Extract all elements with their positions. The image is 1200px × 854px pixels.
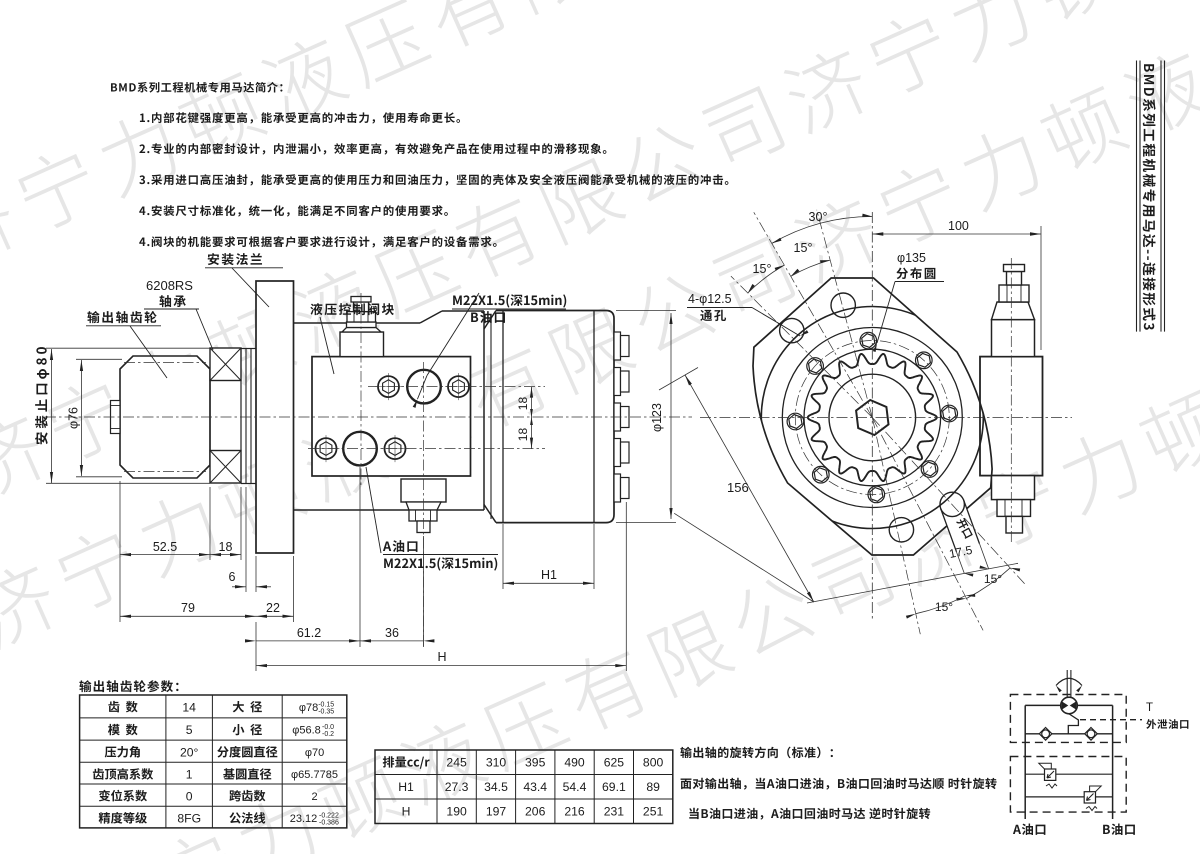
svg-text:-0.35: -0.35 bbox=[318, 708, 334, 715]
svg-text:φ135: φ135 bbox=[897, 251, 926, 265]
svg-text:-0.386: -0.386 bbox=[319, 820, 339, 827]
svg-text:φ56.8: φ56.8 bbox=[292, 725, 321, 737]
svg-text:18: 18 bbox=[516, 428, 530, 442]
svg-text:2: 2 bbox=[311, 791, 317, 803]
svg-text:310: 310 bbox=[486, 756, 507, 770]
svg-text:18: 18 bbox=[219, 540, 233, 554]
svg-text:251: 251 bbox=[643, 805, 664, 819]
svg-text:φ70: φ70 bbox=[305, 747, 324, 759]
svg-text:490: 490 bbox=[564, 756, 585, 770]
svg-text:395: 395 bbox=[525, 756, 546, 770]
svg-text:-0.2: -0.2 bbox=[322, 731, 334, 738]
svg-text:54.4: 54.4 bbox=[563, 780, 587, 794]
svg-text:φ78: φ78 bbox=[299, 702, 318, 714]
svg-text:61.2: 61.2 bbox=[297, 626, 321, 640]
svg-text:6208RS: 6208RS bbox=[146, 278, 193, 293]
svg-text:36: 36 bbox=[385, 626, 399, 640]
svg-text:216: 216 bbox=[564, 805, 585, 819]
svg-text:27.3: 27.3 bbox=[445, 780, 469, 794]
svg-text:4-φ12.5: 4-φ12.5 bbox=[688, 292, 732, 306]
svg-text:1: 1 bbox=[186, 768, 193, 782]
svg-text:H: H bbox=[437, 650, 446, 664]
svg-text:15°: 15° bbox=[753, 262, 772, 276]
svg-text:43.4: 43.4 bbox=[523, 780, 547, 794]
svg-text:30°: 30° bbox=[809, 210, 828, 224]
svg-text:18: 18 bbox=[516, 397, 530, 411]
svg-text:T: T bbox=[1146, 702, 1153, 714]
svg-text:14: 14 bbox=[182, 700, 196, 714]
svg-text:-0.0: -0.0 bbox=[322, 724, 334, 731]
svg-text:52.5: 52.5 bbox=[153, 540, 177, 554]
svg-text:φ65.7785: φ65.7785 bbox=[291, 769, 338, 781]
svg-text:φ123: φ123 bbox=[650, 403, 664, 432]
svg-text:69.1: 69.1 bbox=[602, 780, 626, 794]
svg-text:245: 245 bbox=[446, 756, 467, 770]
svg-text:H1: H1 bbox=[541, 568, 557, 582]
svg-text:0: 0 bbox=[186, 789, 193, 803]
svg-text:-0.15: -0.15 bbox=[318, 701, 334, 708]
svg-text:20°: 20° bbox=[180, 745, 199, 759]
svg-text:100: 100 bbox=[948, 219, 969, 233]
svg-text:-0.222: -0.222 bbox=[319, 813, 339, 820]
svg-text:156: 156 bbox=[727, 480, 749, 495]
svg-text:89: 89 bbox=[646, 780, 660, 794]
svg-text:15°: 15° bbox=[794, 241, 813, 255]
svg-text:197: 197 bbox=[486, 805, 507, 819]
svg-text:5: 5 bbox=[186, 723, 193, 737]
svg-text:800: 800 bbox=[643, 756, 664, 770]
svg-text:15°: 15° bbox=[935, 600, 953, 614]
svg-text:206: 206 bbox=[525, 805, 546, 819]
svg-text:6: 6 bbox=[229, 570, 236, 584]
svg-text:79: 79 bbox=[181, 601, 195, 615]
svg-text:8FG: 8FG bbox=[177, 812, 201, 826]
svg-text:190: 190 bbox=[446, 805, 467, 819]
svg-text:H1: H1 bbox=[398, 780, 414, 794]
svg-text:H: H bbox=[402, 805, 411, 819]
svg-text:34.5: 34.5 bbox=[484, 780, 508, 794]
svg-text:23.12: 23.12 bbox=[290, 813, 318, 825]
svg-text:22: 22 bbox=[266, 601, 280, 615]
svg-text:φ76: φ76 bbox=[67, 407, 81, 429]
svg-text:231: 231 bbox=[604, 805, 625, 819]
svg-text:625: 625 bbox=[604, 756, 625, 770]
svg-text:15°: 15° bbox=[984, 572, 1002, 586]
